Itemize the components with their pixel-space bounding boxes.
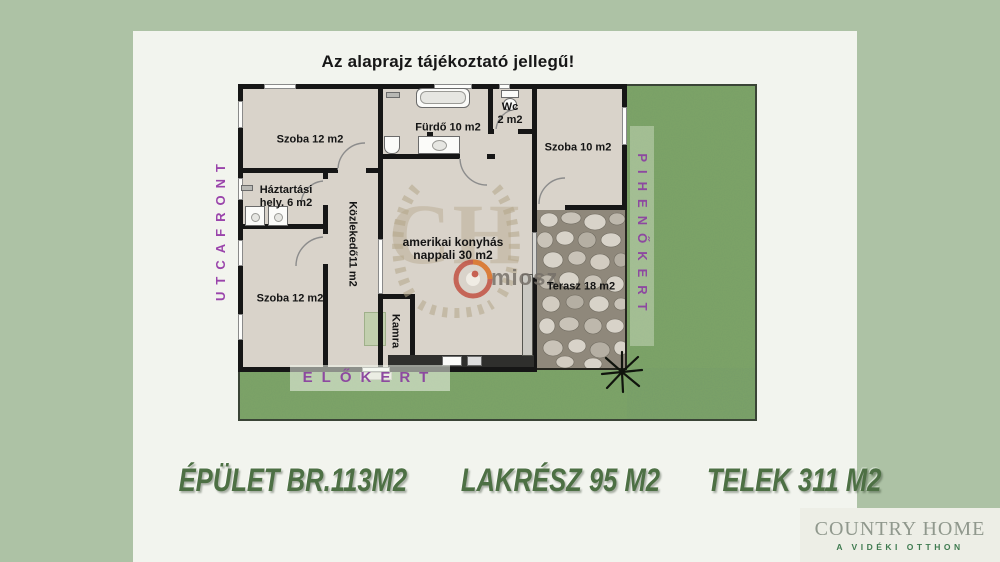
kitchen-sink-icon [467,356,482,366]
area-stats-bar: ÉPÜLET BR.113M2 LAKRÉSZ 95 M2 TELEK 311 … [150,462,850,499]
stat-plot-area: TELEK 311 M2 [706,462,881,499]
window-top-wc [499,84,510,89]
window-top-1 [264,84,296,89]
label-wc-line2: 2 m2 [497,114,522,126]
vanity-sink-icon [418,136,460,154]
label-nappali-line2: nappali 30 m2 [413,248,492,262]
label-haztartasi-line1: Háztartási [260,184,313,196]
grass-border-top [627,84,757,86]
opening-corridor-nappali [378,239,383,294]
window-right-szoba10 [622,107,627,145]
floorplan-flyer: Az alaprajz tájékoztató jellegű! UTCAFRO… [0,0,1000,562]
agency-logo: COUNTRY HOME A VIDÉKI OTTHON [800,508,1000,562]
label-haztartasi-line2: hely. 6 m2 [260,197,312,209]
agency-logo-tagline: A VIDÉKI OTTHON [836,542,963,552]
rest-garden-label: PIHENŐKERT [630,126,654,346]
stat-living-area: LAKRÉSZ 95 M2 [461,462,660,499]
window-left-3 [238,240,243,266]
label-haztartasi: Háztartási hely. 6 m2 [260,184,313,210]
stat-building-area: ÉPÜLET BR.113M2 [179,462,408,499]
grass-border-bottom [238,419,757,421]
label-kozlekedo: Közlekedő11 m2 [346,201,359,287]
floorplan-image: CH miosz [238,84,757,421]
label-wc: Wc 2 m2 [497,101,522,127]
radiator-icon-haztartasi [241,185,253,191]
grass-border-left [238,372,240,421]
label-wc-line1: Wc [502,101,519,113]
agency-logo-name: COUNTRY HOME [815,518,986,540]
door-gap-szoba-tl [338,168,366,173]
wc-tank-icon [501,90,519,98]
terrace-sliding-door [532,232,537,278]
label-kamra: Kamra [389,314,402,348]
front-garden-label: ELŐKERT [290,365,450,391]
label-terasz: Terasz 18 m2 [547,281,615,294]
label-szoba-tl: Szoba 12 m2 [277,134,344,147]
label-nappali: amerikai konyhás nappali 30 m2 [403,236,504,262]
window-left-4 [238,314,243,340]
bathtub-icon [416,88,470,108]
door-gap-szoba10 [537,205,565,210]
disclaimer-title: Az alaprajz tájékoztató jellegű! [218,52,678,72]
street-front-label: UTCAFRONT [208,144,234,314]
toilet-icon-bath [384,136,400,154]
kitchen-counter-right [522,274,533,356]
door-gap-furdo [460,154,487,159]
label-nappali-line1: amerikai konyhás [403,235,504,249]
radiator-icon-bath [386,92,400,98]
door-gap-haztartasi [323,179,328,205]
label-furdo: Fürdő 10 m2 [415,122,480,135]
door-gap-szoba-bl [323,234,328,264]
grass-border-right [755,84,757,421]
label-szoba-bl: Szoba 12 m2 [257,293,324,306]
window-left-1 [238,101,243,128]
label-szoba-tr: Szoba 10 m2 [545,142,612,155]
door-gap-wc [494,129,518,134]
